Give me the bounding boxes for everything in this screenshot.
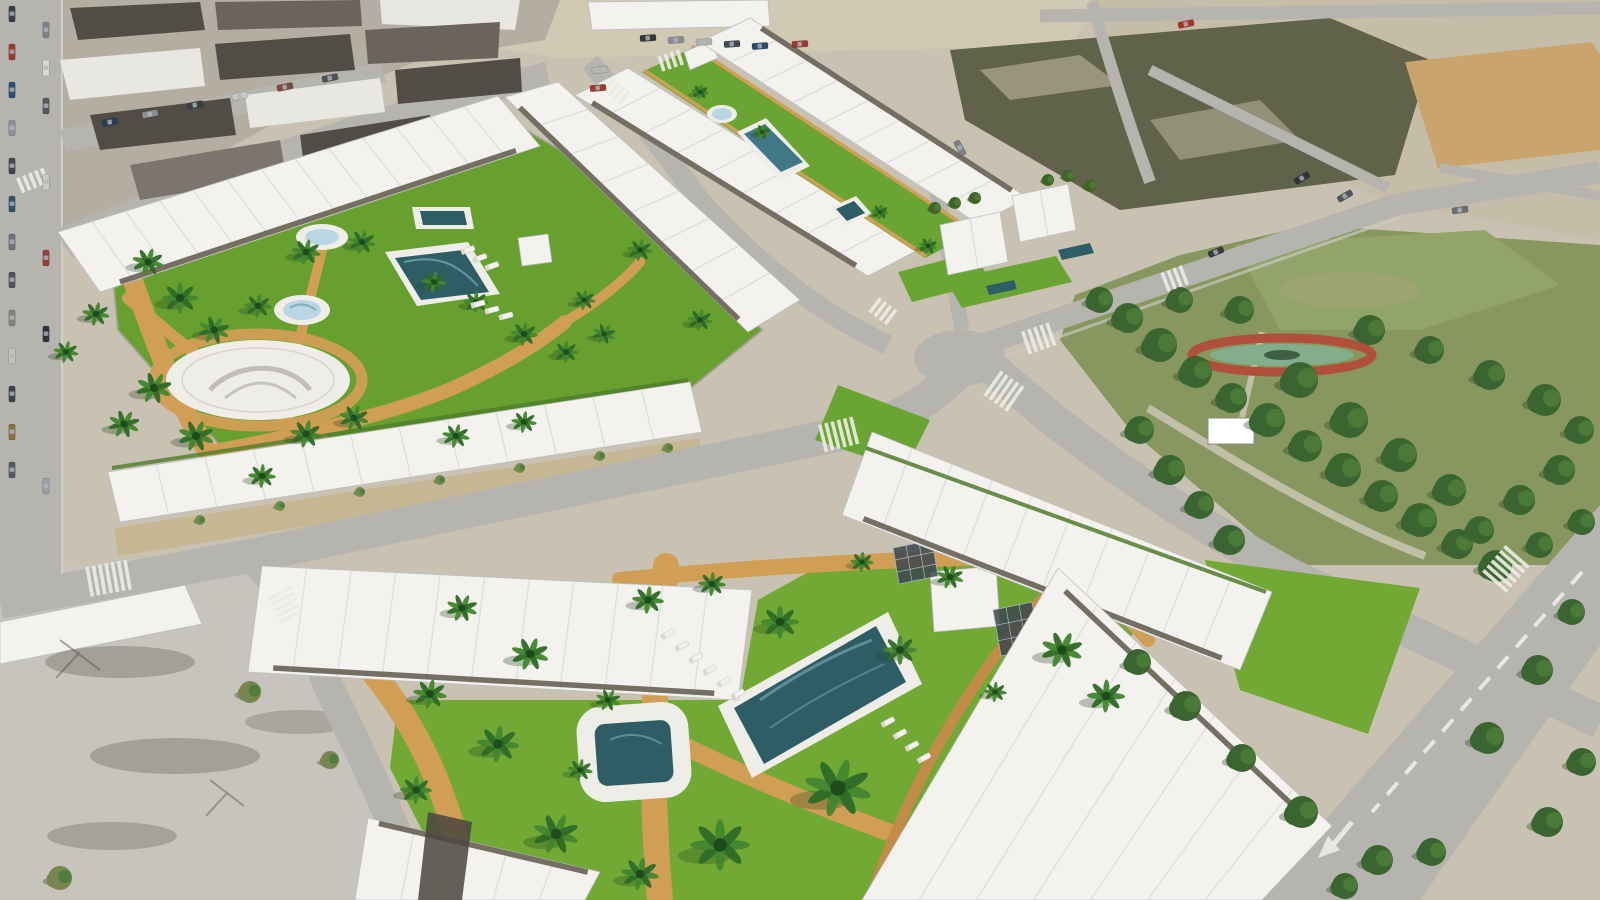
parked-car: [43, 174, 49, 190]
parked-car: [696, 38, 712, 46]
parked-car: [43, 478, 49, 494]
parked-car: [43, 250, 49, 266]
parked-car: [640, 34, 656, 42]
square-pool-a-water: [420, 211, 467, 225]
tree-shadow-blob: [90, 738, 260, 774]
playground-equipment: [1264, 350, 1300, 360]
town-roof: [215, 0, 362, 30]
road-top-edge: [1040, 8, 1600, 16]
kids-pool-c-water: [594, 719, 674, 786]
parked-car: [592, 66, 608, 74]
parked-car: [724, 40, 740, 48]
storage-cube-a: [518, 234, 552, 266]
parked-car: [9, 272, 15, 288]
parked-car: [9, 6, 15, 22]
parked-car: [9, 158, 15, 174]
parked-car: [43, 98, 49, 114]
parked-car: [9, 386, 15, 402]
parked-car: [43, 326, 49, 342]
parked-car: [9, 82, 15, 98]
parked-car: [9, 424, 15, 440]
parked-car: [9, 120, 15, 136]
screenshot-root: [0, 0, 1600, 900]
parked-car: [9, 310, 15, 326]
parked-car: [43, 22, 49, 38]
parked-car: [9, 462, 15, 478]
fountain-b-water: [712, 108, 732, 120]
parked-car: [9, 348, 15, 364]
aerial-site-plan: [0, 0, 1600, 900]
tree-shadow-blob: [47, 822, 177, 850]
parked-car: [9, 234, 15, 250]
parked-car: [752, 42, 768, 50]
parked-car: [792, 40, 808, 48]
parked-car: [668, 36, 684, 44]
parked-car: [9, 196, 15, 212]
park-dirt-patch: [1280, 272, 1420, 308]
sapling-field: [1405, 42, 1600, 168]
parked-car: [590, 84, 606, 92]
tree-shadow-blob: [45, 646, 195, 678]
parked-car: [43, 60, 49, 76]
parked-car: [9, 44, 15, 60]
central-plaza-deck: [166, 340, 350, 420]
